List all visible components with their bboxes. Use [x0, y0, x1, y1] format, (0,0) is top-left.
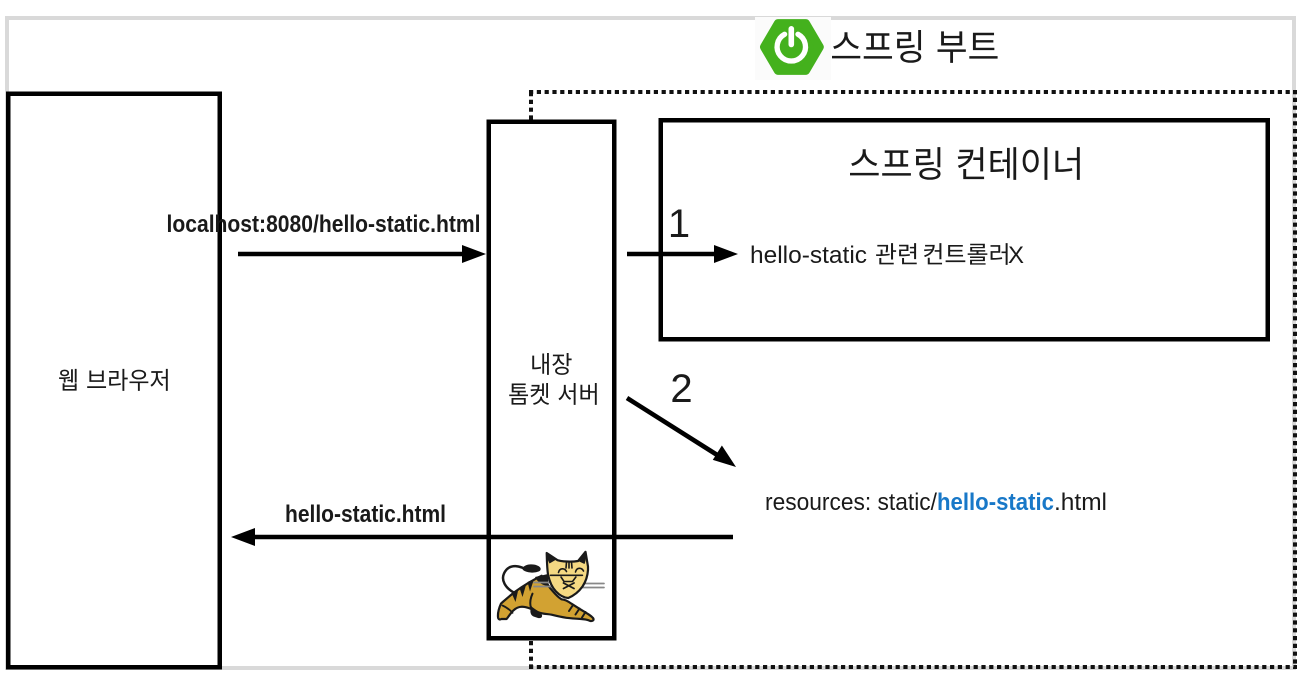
svg-text:hello-static: hello-static [937, 489, 1054, 516]
svg-text:localhost:8080/hello-static.ht: localhost:8080/hello-static.html [167, 211, 481, 238]
svg-text:resources: static/: resources: static/ [765, 489, 937, 516]
svg-text:X: X [1008, 242, 1024, 269]
svg-text:hello-static: hello-static [750, 242, 867, 269]
svg-text:.html: .html [1054, 489, 1107, 516]
svg-text:1: 1 [668, 202, 690, 246]
svg-text:hello-static.html: hello-static.html [285, 501, 446, 528]
svg-text:2: 2 [670, 367, 692, 411]
